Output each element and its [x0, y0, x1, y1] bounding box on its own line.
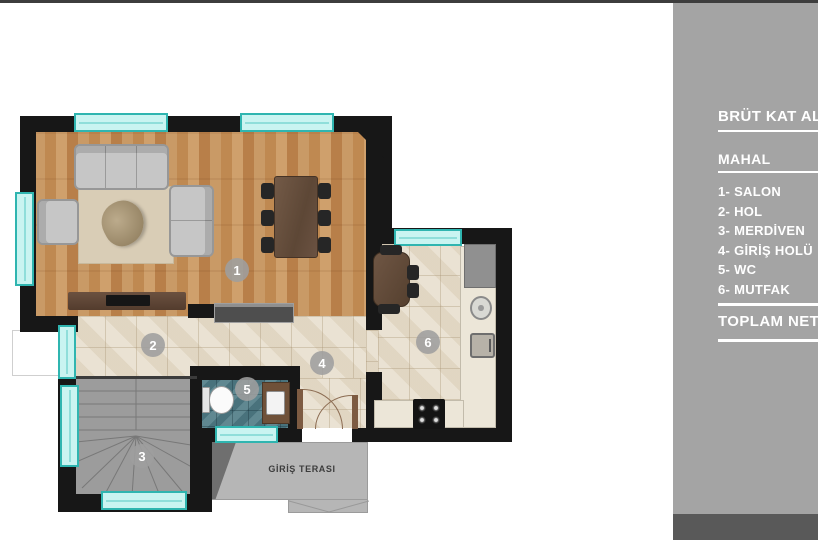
kitchen-table: [373, 252, 410, 307]
wall-door-jamb: [352, 428, 368, 442]
window-salon-top-1: [74, 113, 168, 132]
fridge: [464, 244, 496, 288]
oven: [470, 333, 495, 358]
legend-item-giris-holu: 4- GİRİŞ HOLÜ: [718, 241, 818, 261]
room-label-mutfak: 6: [416, 330, 440, 354]
floor-plan-page: 1 2 3 4 5 6 GİRİŞ TERASI BRÜT KAT ALA MA…: [0, 0, 818, 540]
sidebar-divider: [718, 339, 818, 342]
window-salon-left: [15, 192, 34, 286]
window-hall-left: [58, 325, 76, 379]
sidebar-section-label: MAHAL: [718, 151, 818, 173]
tv-console: [68, 292, 186, 310]
exterior-ledge: [12, 330, 64, 376]
window-wc-bottom: [215, 426, 278, 443]
wc-vanity: [262, 382, 290, 424]
sidebar-title: BRÜT KAT ALA: [718, 108, 818, 132]
wall-kitchen-right: [496, 240, 512, 442]
wall-salon-stub: [188, 304, 216, 318]
legend-item-salon: 1- SALON: [718, 182, 818, 202]
salon-armchair: [37, 199, 79, 245]
dining-chair: [318, 237, 331, 253]
room-label-hol: 2: [141, 333, 165, 357]
dining-chair: [318, 183, 331, 199]
room-label-wc: 5: [235, 377, 259, 401]
sidebar-footer-strip: [673, 514, 818, 540]
entrance-door-leaf-right: [352, 395, 358, 429]
room-label-giris-holu: 4: [310, 351, 334, 375]
toilet-bowl: [209, 386, 234, 414]
stairs-steps-drawing: [76, 378, 197, 496]
window-kitchen-top: [394, 229, 462, 246]
kitchen-chair: [407, 265, 419, 280]
window-stairs-left: [60, 385, 79, 467]
window-stairs-bottom: [101, 491, 187, 510]
terrace-step-lines: [289, 500, 369, 514]
dining-table: [274, 176, 318, 258]
wc-sink: [266, 391, 285, 415]
terrace-label: GİRİŞ TERASI: [222, 464, 382, 476]
wall-left-of-terrace: [190, 442, 212, 512]
terrace-step: [288, 499, 368, 513]
sidebar-total-label: TOPLAM NET: [718, 313, 818, 330]
stairs-area: [76, 378, 197, 496]
kitchen-chair: [378, 304, 400, 314]
legend-item-hol: 2- HOL: [718, 202, 818, 222]
salon-sofa-small: [169, 185, 214, 257]
hall-cabinet: [214, 303, 294, 323]
window-salon-top-2: [240, 113, 334, 132]
dining-chair: [261, 237, 274, 253]
kitchen-sink: [470, 296, 492, 320]
info-sidebar: BRÜT KAT ALA MAHAL 1- SALON 2- HOL 3- ME…: [673, 3, 818, 514]
dining-chair: [261, 183, 274, 199]
legend-item-mutfak: 6- MUTFAK: [718, 280, 818, 300]
room-label-salon: 1: [225, 258, 249, 282]
legend-item-merdiven: 3- MERDİVEN: [718, 221, 818, 241]
room-legend: 1- SALON 2- HOL 3- MERDİVEN 4- GİRİŞ HOL…: [718, 182, 818, 299]
room-label-merdiven: 3: [130, 444, 154, 468]
cooktop: [413, 399, 445, 429]
legend-item-wc: 5- WC: [718, 260, 818, 280]
dining-chair: [318, 210, 331, 226]
kitchen-chair: [407, 283, 419, 298]
kitchen-chair: [380, 245, 402, 255]
page-top-border: [0, 0, 818, 3]
hall-stairs-edge: [76, 376, 197, 379]
dining-chair: [261, 210, 274, 226]
sidebar-divider: [718, 303, 818, 306]
tv: [106, 295, 150, 306]
salon-sofa-large: [74, 144, 169, 190]
